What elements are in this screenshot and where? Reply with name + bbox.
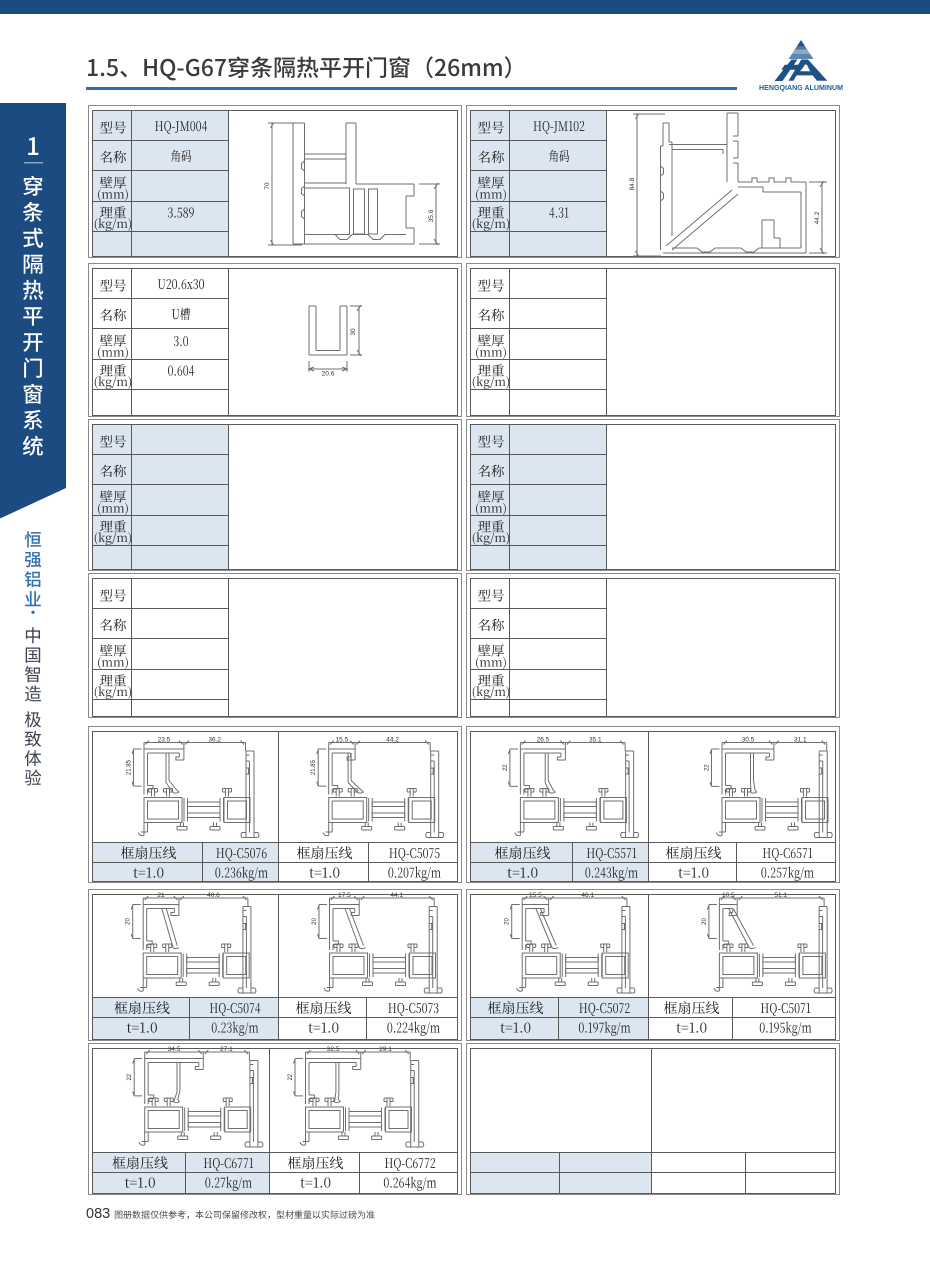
svg-text:HENGQIANG ALUMINUM: HENGQIANG ALUMINUM: [759, 85, 843, 92]
